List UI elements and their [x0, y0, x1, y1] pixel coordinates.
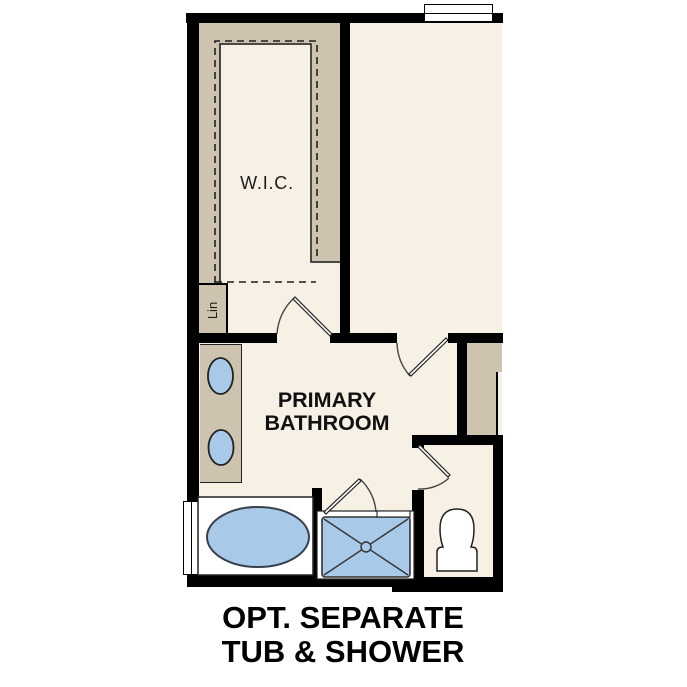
- plan-caption: OPT. SEPARATE TUB & SHOWER: [143, 601, 543, 669]
- wc-door-panel: [418, 445, 450, 477]
- shower-door-panel: [324, 479, 361, 514]
- shower-door-arc: [360, 479, 376, 512]
- wic-shelf-edge: [220, 44, 340, 284]
- bathroom-room-label: PRIMARY BATHROOM: [237, 389, 417, 435]
- bathroom-label-line2: BATHROOM: [237, 412, 417, 435]
- wic-rod-dashed: [215, 41, 317, 283]
- caption-line2: TUB & SHOWER: [143, 635, 543, 669]
- bedroom-door-arc: [397, 343, 410, 376]
- caption-line1: OPT. SEPARATE: [143, 601, 543, 635]
- wc-door-arc: [418, 478, 449, 489]
- plan-linework: [0, 0, 687, 687]
- shower-drain: [361, 542, 371, 552]
- toilet: [437, 509, 477, 571]
- sink-1: [208, 358, 233, 394]
- bathtub-basin: [207, 507, 309, 567]
- bedroom-door-panel: [409, 338, 448, 376]
- wic-room-label: W.I.C.: [222, 173, 312, 194]
- linen-label-text: Lin: [205, 301, 220, 318]
- sink-2: [209, 430, 234, 465]
- linen-label: Lin: [198, 283, 228, 337]
- floor-plan: W.I.C. Lin PRIMARY BATHROOM OPT. SEPARAT…: [0, 0, 687, 687]
- wic-door-panel: [293, 297, 332, 336]
- shower-glass-panel: [377, 511, 410, 517]
- wic-door-arc: [277, 299, 293, 334]
- bathroom-label-line1: PRIMARY: [237, 389, 417, 412]
